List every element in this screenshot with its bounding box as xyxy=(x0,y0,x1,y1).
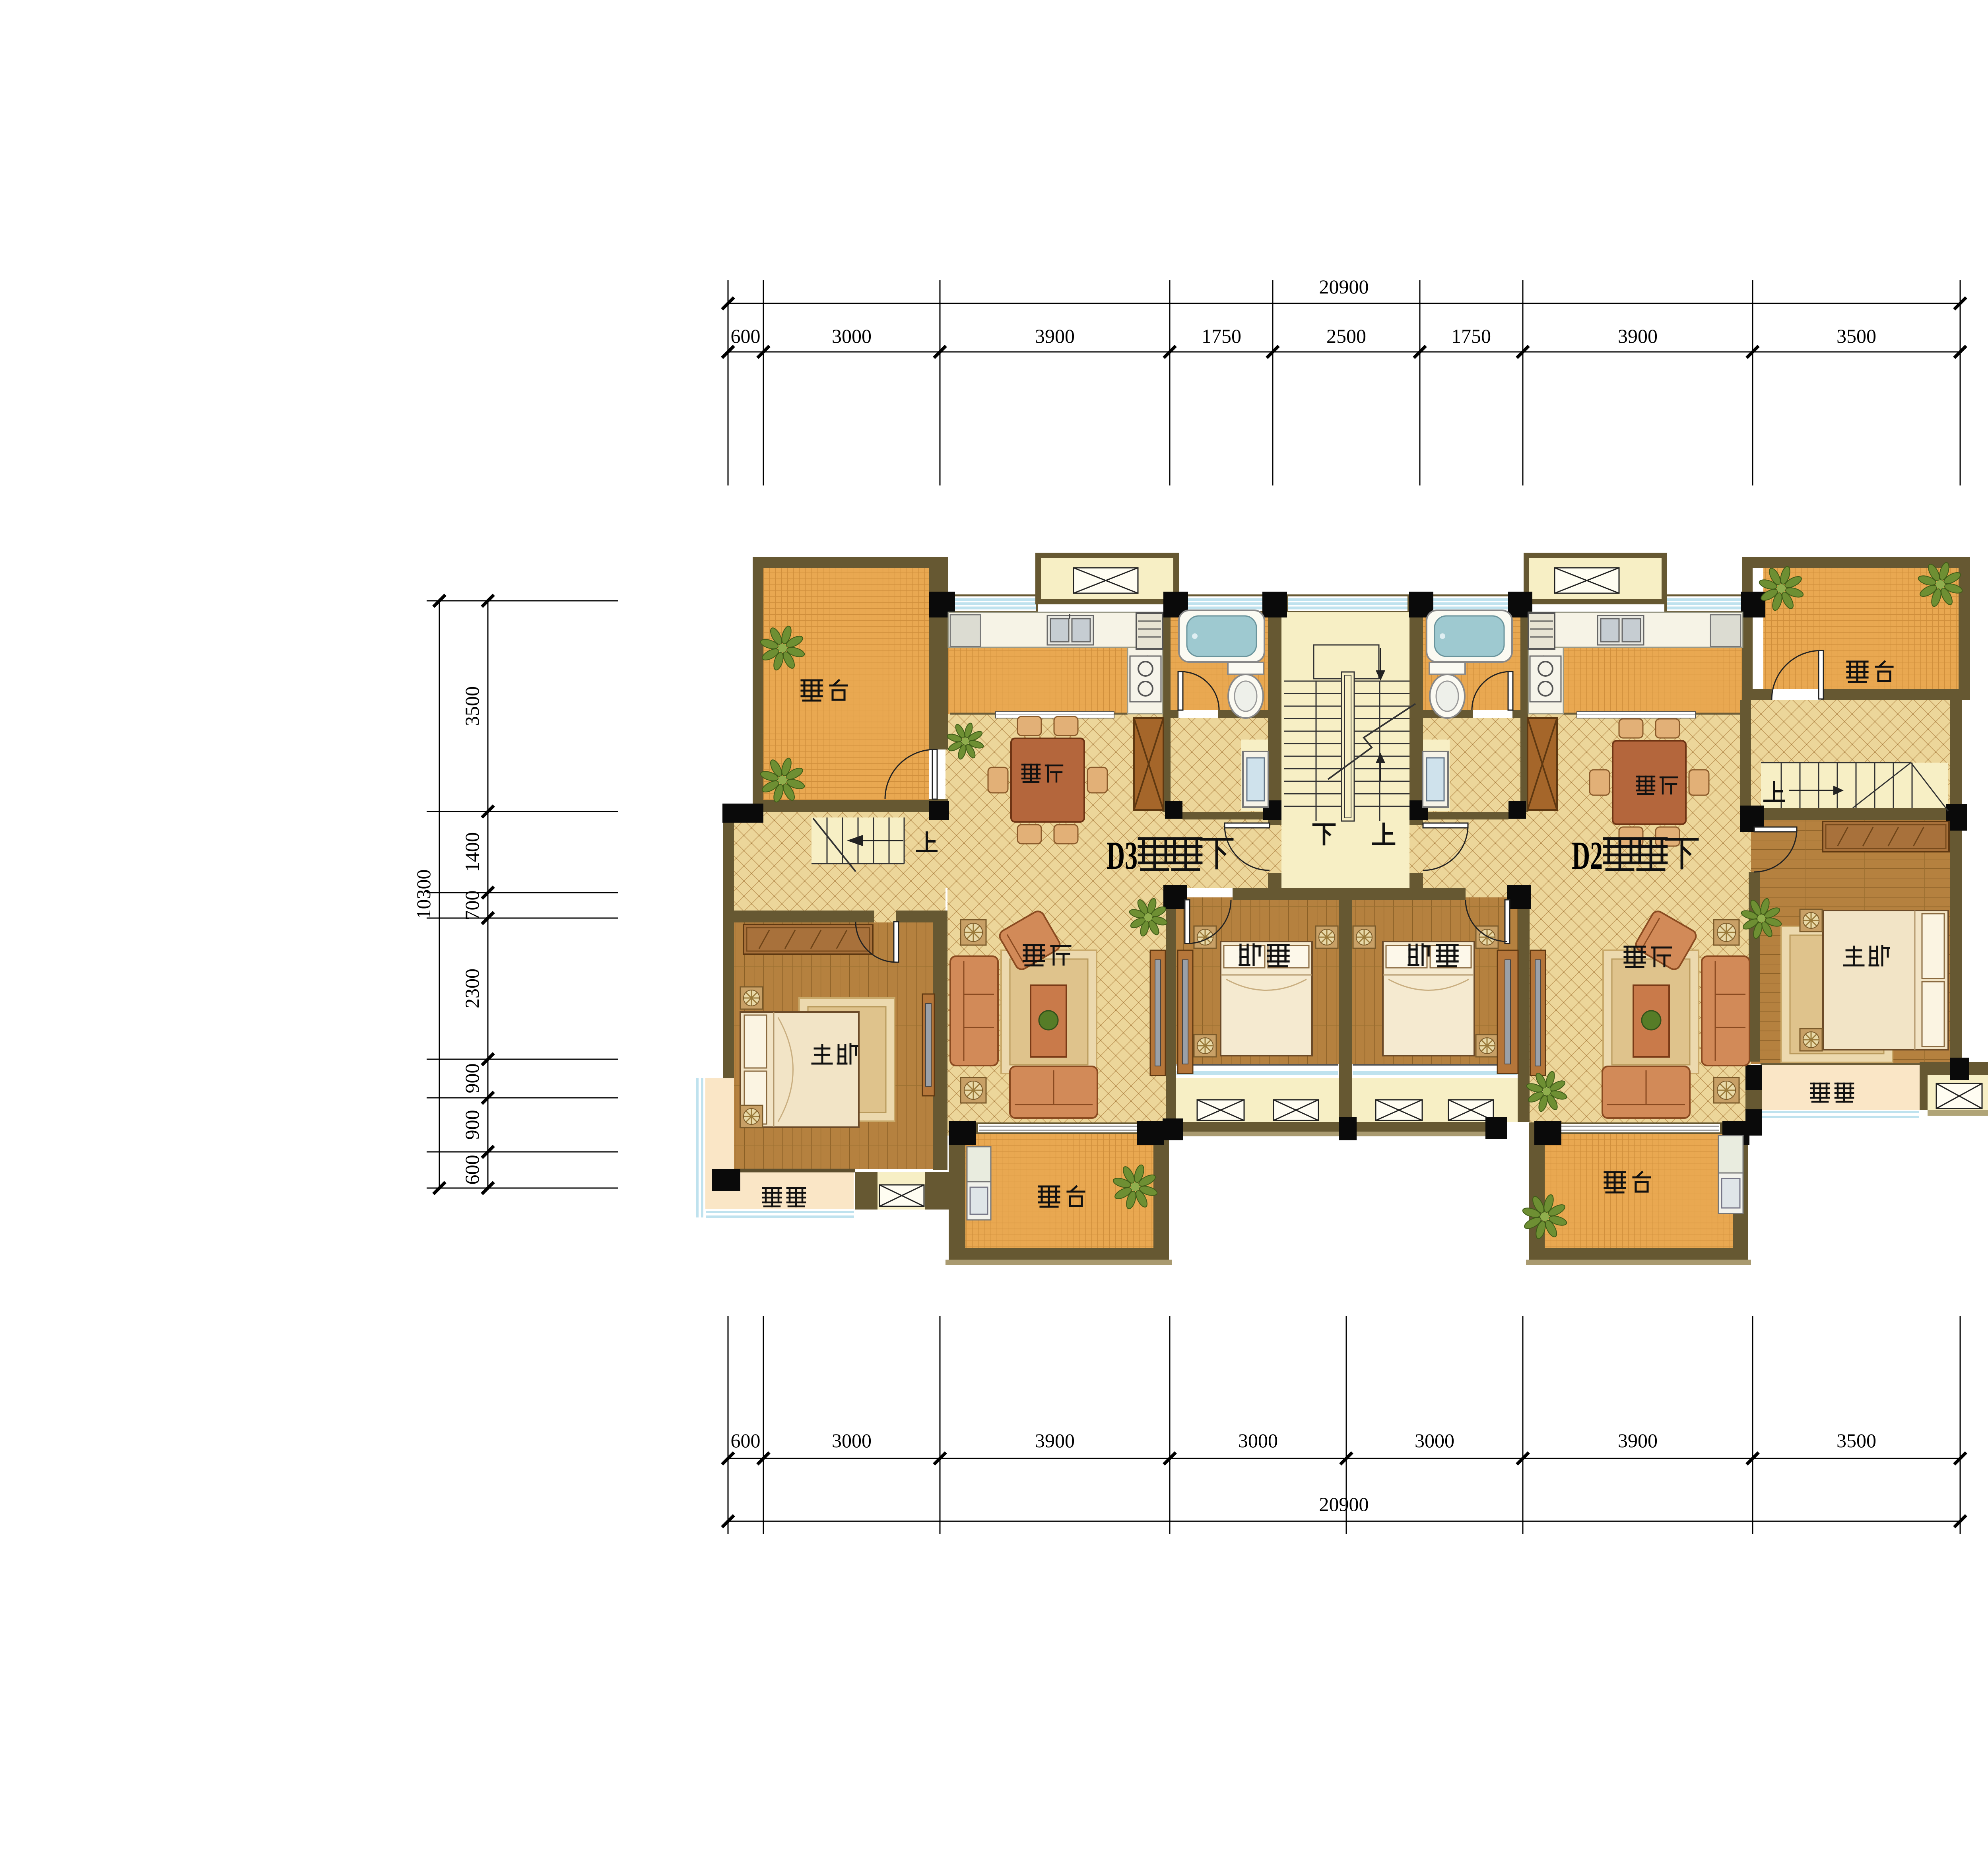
svg-text:2500: 2500 xyxy=(1326,325,1366,347)
svg-text:3000: 3000 xyxy=(1415,1429,1454,1452)
svg-text:900: 900 xyxy=(461,1110,483,1140)
svg-text:10300: 10300 xyxy=(412,870,435,919)
svg-text:600: 600 xyxy=(731,325,761,347)
svg-text:1750: 1750 xyxy=(1202,325,1241,347)
svg-text:3000: 3000 xyxy=(832,1429,872,1452)
svg-text:D2: D2 xyxy=(1572,833,1603,878)
svg-text:3900: 3900 xyxy=(1618,325,1658,347)
svg-text:3500: 3500 xyxy=(1837,325,1876,347)
svg-text:3500: 3500 xyxy=(1837,1429,1876,1452)
svg-text:20900: 20900 xyxy=(1319,276,1369,298)
svg-text:20900: 20900 xyxy=(1319,1493,1369,1515)
svg-text:3000: 3000 xyxy=(832,325,872,347)
svg-text:3900: 3900 xyxy=(1035,325,1075,347)
svg-text:3900: 3900 xyxy=(1035,1429,1075,1452)
svg-text:900: 900 xyxy=(461,1064,483,1093)
svg-text:3900: 3900 xyxy=(1618,1429,1658,1452)
svg-text:1400: 1400 xyxy=(461,832,483,872)
svg-text:3000: 3000 xyxy=(1238,1429,1278,1452)
svg-text:600: 600 xyxy=(461,1155,483,1185)
svg-text:D3: D3 xyxy=(1107,833,1138,878)
svg-text:600: 600 xyxy=(731,1429,761,1452)
svg-text:3500: 3500 xyxy=(461,686,483,726)
svg-text:1750: 1750 xyxy=(1451,325,1491,347)
svg-text:2300: 2300 xyxy=(461,969,483,1008)
svg-text:700: 700 xyxy=(461,891,483,920)
